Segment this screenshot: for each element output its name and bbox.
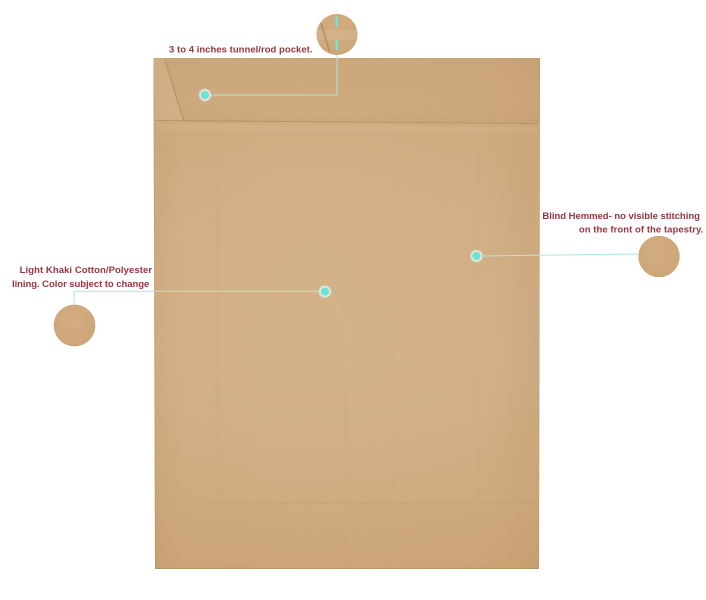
svg-text:on the front of the tapestry.: on the front of the tapestry. [579, 225, 704, 236]
svg-text:lining. Color subject to chang: lining. Color subject to change [12, 279, 149, 290]
svg-text:Light Khaki Cotton/Polyester: Light Khaki Cotton/Polyester [20, 265, 153, 276]
svg-text:3 to 4 inches tunnel/rod pocke: 3 to 4 inches tunnel/rod pocket. [169, 44, 312, 55]
svg-text:Blind Hemmed- no visible stitc: Blind Hemmed- no visible stitching [542, 211, 700, 222]
